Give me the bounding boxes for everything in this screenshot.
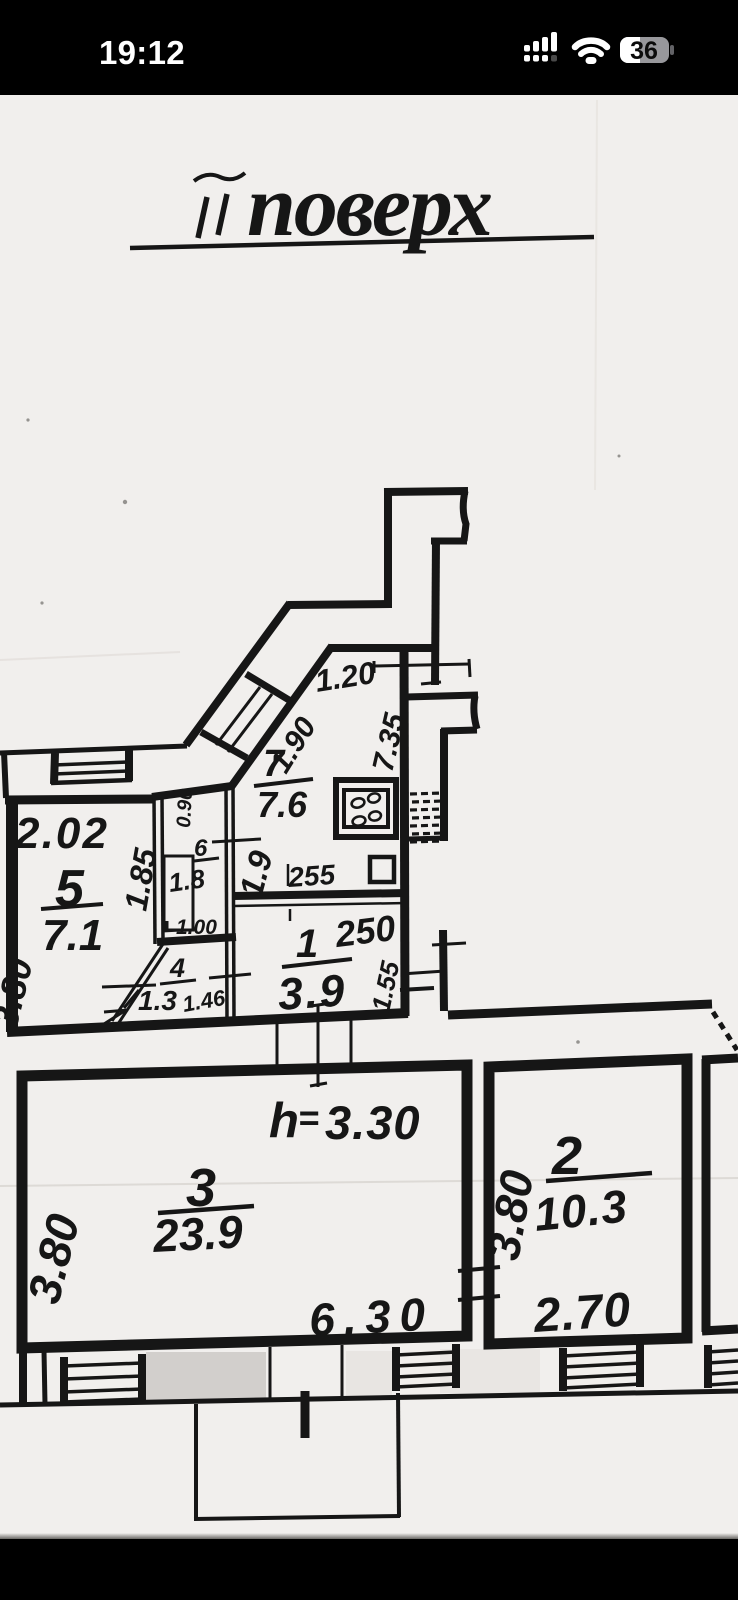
svg-text:255: 255 [286, 859, 336, 893]
svg-text:3.9: 3.9 [276, 964, 348, 1020]
svg-text:3.80: 3.80 [17, 1209, 89, 1309]
svg-text:6: 6 [194, 835, 208, 862]
svg-text:250: 250 [332, 907, 398, 955]
svg-text:0.90: 0.90 [173, 788, 197, 828]
svg-text:23.9: 23.9 [151, 1205, 245, 1262]
svg-text:1.55: 1.55 [366, 958, 406, 1014]
svg-text:6.30: 6.30 [308, 1288, 427, 1346]
svg-text:1.8: 1.8 [167, 863, 208, 898]
svg-text:7.1: 7.1 [42, 911, 103, 960]
svg-text:1.3: 1.3 [138, 985, 177, 1016]
svg-text:1.00: 1.00 [176, 916, 217, 939]
svg-text:=: = [298, 1097, 319, 1138]
svg-text:h: h [269, 1094, 299, 1148]
svg-text:4: 4 [169, 953, 185, 983]
svg-text:3.80: 3.80 [0, 954, 41, 1032]
svg-text:2.70: 2.70 [531, 1283, 633, 1343]
svg-text:7.6: 7.6 [257, 784, 308, 825]
svg-text:36: 36 [630, 37, 658, 65]
svg-text:1.46: 1.46 [181, 985, 228, 1017]
svg-text:19:12: 19:12 [99, 34, 185, 71]
svg-text:2.02: 2.02 [14, 809, 108, 858]
svg-text:10.3: 10.3 [532, 1179, 630, 1240]
svg-text:1: 1 [296, 922, 318, 966]
svg-text:3.30: 3.30 [325, 1096, 420, 1149]
svg-text:1.85: 1.85 [117, 844, 163, 913]
